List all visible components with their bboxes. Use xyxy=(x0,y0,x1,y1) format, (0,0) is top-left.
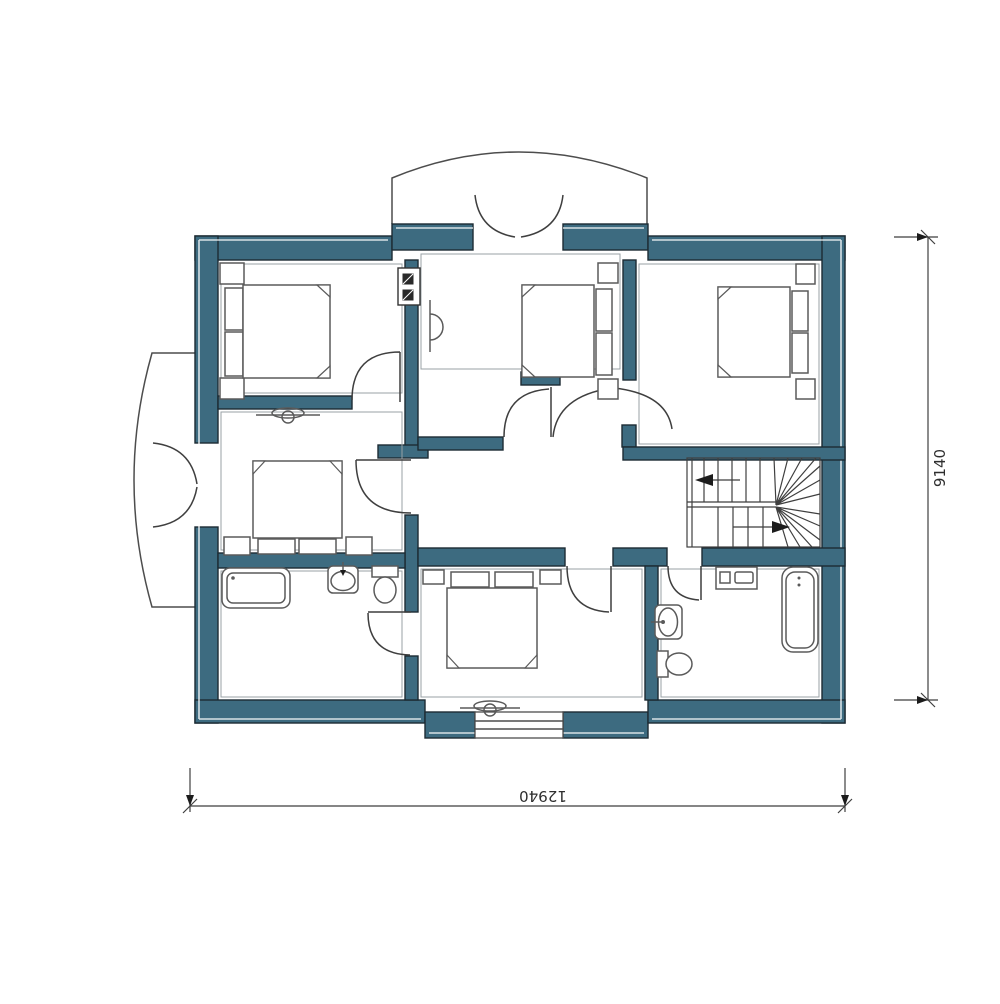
wall-bedroom-tr-west xyxy=(623,260,636,380)
pillow-icon xyxy=(792,333,808,373)
pillow-icon xyxy=(792,291,808,331)
bathtub-icon xyxy=(222,568,290,608)
nightstand-icon xyxy=(220,263,244,284)
bathtub-icon xyxy=(782,567,818,652)
wall-light-icon xyxy=(256,408,320,423)
wall-bottom-mid-left xyxy=(425,712,475,738)
sconce-icon xyxy=(430,300,443,352)
door-bedroom-top-middle xyxy=(504,387,551,437)
bed-icon xyxy=(718,287,790,377)
door-bathroom-right xyxy=(668,566,701,600)
pillow-icon xyxy=(225,288,243,330)
toilet-icon xyxy=(372,566,398,603)
bed-top-right xyxy=(718,264,815,399)
bed-top-left xyxy=(220,263,330,399)
pillow-icon xyxy=(258,539,295,554)
nightstand-icon xyxy=(598,379,618,399)
nightstand-icon xyxy=(423,570,444,584)
floor-plan-canvas: 12940 9140 xyxy=(0,0,1000,1000)
wall-bedroom-ml-east xyxy=(405,515,418,612)
wall-hall-north xyxy=(418,437,503,450)
double-door-leaf-icon xyxy=(153,487,197,527)
dimension-bottom: 12940 xyxy=(183,768,852,813)
floor-plan-page: 12940 9140 xyxy=(0,0,1000,1000)
balcony-arc xyxy=(392,152,647,224)
bed-icon xyxy=(447,588,537,668)
dimension-right-label: 9140 xyxy=(931,449,949,487)
door-bathroom-left xyxy=(368,612,411,655)
bed-icon xyxy=(522,285,594,377)
double-door-leaf-icon xyxy=(475,195,515,237)
stair-arrow-down-icon xyxy=(733,521,790,533)
double-door-leaf-icon xyxy=(153,443,197,484)
bathroom-right-fixtures xyxy=(651,567,818,677)
nightstand-icon xyxy=(220,378,244,399)
bathroom-left-fixtures xyxy=(222,562,398,608)
pillow-icon xyxy=(495,572,533,587)
staircase xyxy=(687,458,820,547)
left-balcony xyxy=(134,353,197,607)
wall-bottom-mid-right xyxy=(563,712,648,738)
door-bedroom-bottom-middle xyxy=(567,566,611,612)
wall-bedroom-tr-west-stub xyxy=(622,425,636,447)
nightstand-icon xyxy=(598,263,618,283)
pillow-icon xyxy=(225,332,243,376)
pillow-icon xyxy=(596,289,612,331)
pillow-icon xyxy=(299,539,336,554)
stair-divider xyxy=(687,502,776,507)
double-door-leaf-icon xyxy=(521,195,563,237)
wall-bedroom-bm-north xyxy=(418,548,565,566)
nightstand-icon xyxy=(346,537,372,555)
dimension-right: 9140 xyxy=(894,230,949,707)
wall-hall-south xyxy=(613,548,667,566)
door-bedroom-top-left xyxy=(352,352,400,402)
pillow-icon xyxy=(596,333,612,375)
stair-winders-upper xyxy=(774,458,820,505)
bed-icon xyxy=(243,285,330,378)
wall-bath-right-north xyxy=(702,548,845,566)
dimension-bottom-label: 12940 xyxy=(519,787,567,805)
nightstand-icon xyxy=(224,537,250,555)
sink-icon xyxy=(328,562,358,593)
balcony-arc xyxy=(134,353,195,607)
toilet-icon xyxy=(657,651,692,677)
sink-icon xyxy=(651,605,682,639)
washing-machine-icon xyxy=(716,567,757,589)
wall-bath-left-east xyxy=(405,656,418,700)
bed-bottom-middle xyxy=(423,570,561,668)
nightstand-icon xyxy=(796,264,815,284)
nightstand-icon xyxy=(796,379,815,399)
electrical-panel-icon xyxy=(398,268,420,305)
bed-mid-left xyxy=(224,461,372,555)
nightstand-icon xyxy=(540,570,561,584)
dimension-line xyxy=(183,768,852,813)
bed-icon xyxy=(253,461,342,538)
door-bedroom-mid-left xyxy=(356,460,411,513)
pillow-icon xyxy=(451,572,489,587)
